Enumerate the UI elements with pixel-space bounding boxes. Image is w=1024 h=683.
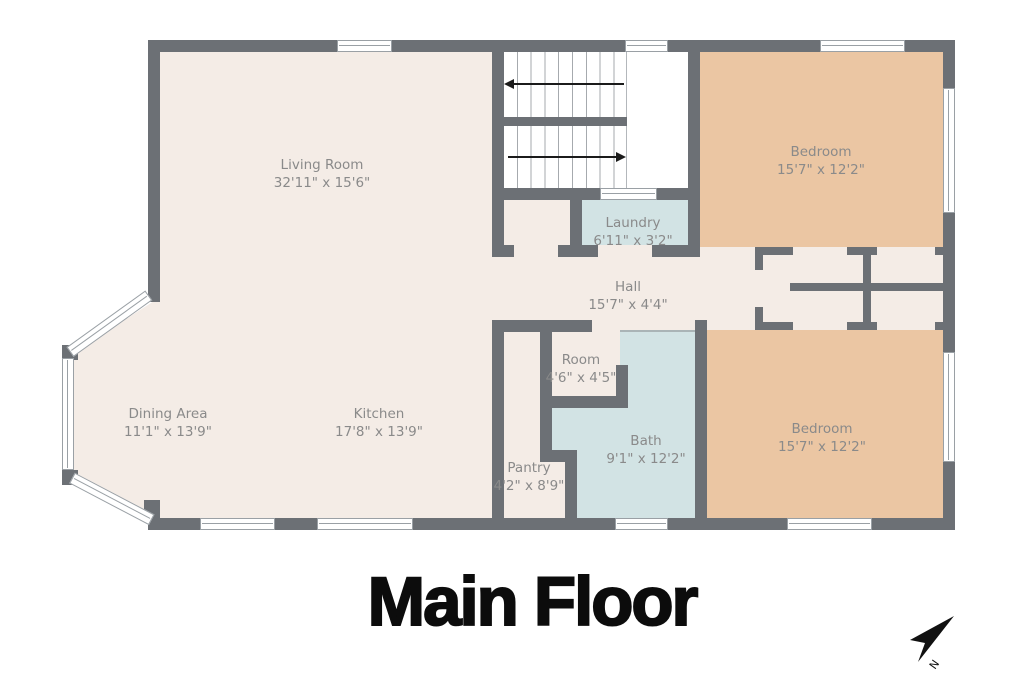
stair-arrow-up-head xyxy=(504,79,514,89)
bath-fill-main xyxy=(620,330,695,518)
wall-closet-stub-bottom xyxy=(763,322,793,330)
room-dims: 6'11" x 3'2" xyxy=(593,232,672,250)
window-bottom-kitchen xyxy=(317,518,413,530)
label-bedroom-bottom: Bedroom 15'7" x 12'2" xyxy=(778,420,866,456)
label-kitchen: Kitchen 17'8" x 13'9" xyxy=(335,405,423,441)
wall-closet-cap-top xyxy=(847,247,877,255)
wall-room-bottom xyxy=(540,396,628,408)
label-laundry: Laundry 6'11" x 3'2" xyxy=(593,214,672,250)
stair-arrow-up-line xyxy=(512,83,624,85)
wall-hall-top-a xyxy=(492,245,514,257)
wall-outer-left xyxy=(148,40,160,302)
label-bedroom-top: Bedroom 15'7" x 12'2" xyxy=(777,143,865,179)
window-right-bedroom-top xyxy=(943,88,955,213)
label-bath: Bath 9'1" x 12'2" xyxy=(606,432,685,468)
room-name: Living Room xyxy=(274,156,371,174)
room-dims: 15'7" x 12'2" xyxy=(778,438,866,456)
window-laundry xyxy=(600,188,657,200)
wall-stair-left xyxy=(492,52,504,257)
room-name: Room xyxy=(546,351,617,369)
wall-bedroom-top-west xyxy=(688,52,700,257)
wall-closet-rstub-top xyxy=(935,247,943,255)
wall-hall-top-b xyxy=(558,245,598,257)
room-dims: 32'11" x 15'6" xyxy=(274,174,371,192)
room-dims: 9'1" x 12'2" xyxy=(606,450,685,468)
stair-arrow-down-head xyxy=(616,152,626,162)
room-name: Pantry xyxy=(494,459,565,477)
room-dims: 4'6" x 4'5" xyxy=(546,369,617,387)
window-bottom-bedroom xyxy=(787,518,872,530)
window-top-bedroom xyxy=(820,40,905,52)
label-hall: Hall 15'7" x 4'4" xyxy=(588,278,667,314)
window-bay-front xyxy=(62,358,74,470)
window-bottom-bath xyxy=(615,518,668,530)
svg-text:N: N xyxy=(927,658,942,672)
room-name: Kitchen xyxy=(335,405,423,423)
window-bottom-dining xyxy=(200,518,275,530)
room-name: Hall xyxy=(588,278,667,296)
wall-bath-bedroom xyxy=(695,320,707,520)
room-dims: 11'1" x 13'9" xyxy=(124,423,212,441)
label-room: Room 4'6" x 4'5" xyxy=(546,351,617,387)
label-pantry: Pantry 4'2" x 8'9" xyxy=(494,459,565,495)
room-name: Bedroom xyxy=(778,420,866,438)
room-dims: 4'2" x 8'9" xyxy=(494,477,565,495)
room-dims: 17'8" x 13'9" xyxy=(335,423,423,441)
room-dims: 15'7" x 12'2" xyxy=(777,161,865,179)
wall-closet-rstub-bottom xyxy=(935,322,943,330)
wall-closet-ibeam xyxy=(863,247,871,330)
room-name: Bath xyxy=(606,432,685,450)
bath-hall-threshold xyxy=(620,330,695,332)
label-dining-area: Dining Area 11'1" x 13'9" xyxy=(124,405,212,441)
wall-closet-stub-top xyxy=(763,247,793,255)
window-top-landing xyxy=(625,40,668,52)
room-name: Dining Area xyxy=(124,405,212,423)
wall-room-right xyxy=(616,365,628,408)
window-right-bedroom-bottom xyxy=(943,352,955,462)
room-name: Bedroom xyxy=(777,143,865,161)
label-living-room: Living Room 32'11" x 15'6" xyxy=(274,156,371,192)
window-top-living xyxy=(337,40,392,52)
wall-pantry-right xyxy=(565,450,577,520)
stair-arrow-down-line xyxy=(508,156,620,158)
floor-plan: Living Room 32'11" x 15'6" Bedroom 15'7"… xyxy=(0,0,1024,683)
wall-hall-end-lower xyxy=(755,307,763,330)
room-name: Laundry xyxy=(593,214,672,232)
wall-room-left xyxy=(540,320,552,460)
wall-closet-cap-bottom xyxy=(847,322,877,330)
room-dims: 15'7" x 4'4" xyxy=(588,296,667,314)
north-arrow-icon: N xyxy=(902,612,962,676)
wall-hall-end-upper xyxy=(755,247,763,270)
wall-stair-divider xyxy=(503,117,627,126)
floor-title: Main Floor xyxy=(368,562,697,641)
wall-stair-bottom xyxy=(492,188,700,200)
